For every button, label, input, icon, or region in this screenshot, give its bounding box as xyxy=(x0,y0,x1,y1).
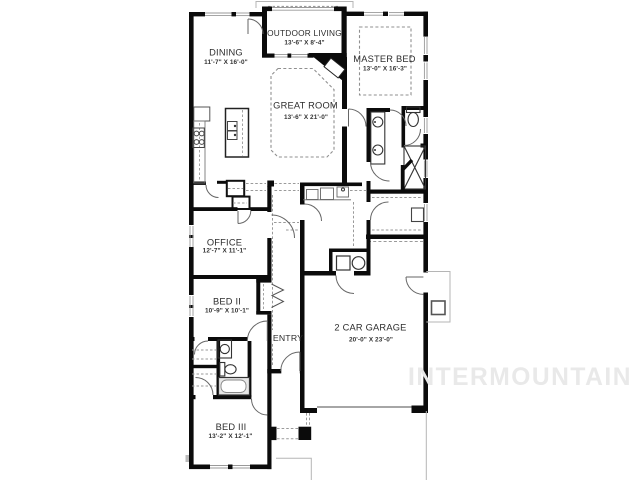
svg-text:13'-6" X 8'-4": 13'-6" X 8'-4" xyxy=(284,40,324,47)
svg-text:GREAT ROOM: GREAT ROOM xyxy=(273,101,338,111)
svg-text:10'-9" X 10'-1": 10'-9" X 10'-1" xyxy=(205,308,249,315)
svg-text:11'-7" X 16'-0": 11'-7" X 16'-0" xyxy=(204,59,248,66)
svg-text:INTERMOUNTAIN: INTERMOUNTAIN xyxy=(408,364,632,391)
svg-text:BED II: BED II xyxy=(213,297,241,307)
svg-text:OFFICE: OFFICE xyxy=(207,238,242,248)
svg-text:2 CAR GARAGE: 2 CAR GARAGE xyxy=(334,323,406,333)
svg-text:MASTER BED: MASTER BED xyxy=(353,54,416,64)
svg-text:20'-0" X 23'-0": 20'-0" X 23'-0" xyxy=(349,337,393,344)
svg-text:13'-2" X 12'-1": 13'-2" X 12'-1" xyxy=(209,433,253,440)
svg-text:12'-7" X 11'-1": 12'-7" X 11'-1" xyxy=(203,248,247,255)
svg-text:13'-6" X 21'-0": 13'-6" X 21'-0" xyxy=(284,114,328,121)
svg-text:OUTDOOR LIVING: OUTDOOR LIVING xyxy=(267,28,342,38)
svg-text:13'-0" X 16'-3": 13'-0" X 16'-3" xyxy=(363,66,407,73)
svg-text:BED III: BED III xyxy=(216,422,247,432)
svg-text:ENTRY: ENTRY xyxy=(273,333,303,343)
svg-text:DINING: DINING xyxy=(209,48,243,58)
